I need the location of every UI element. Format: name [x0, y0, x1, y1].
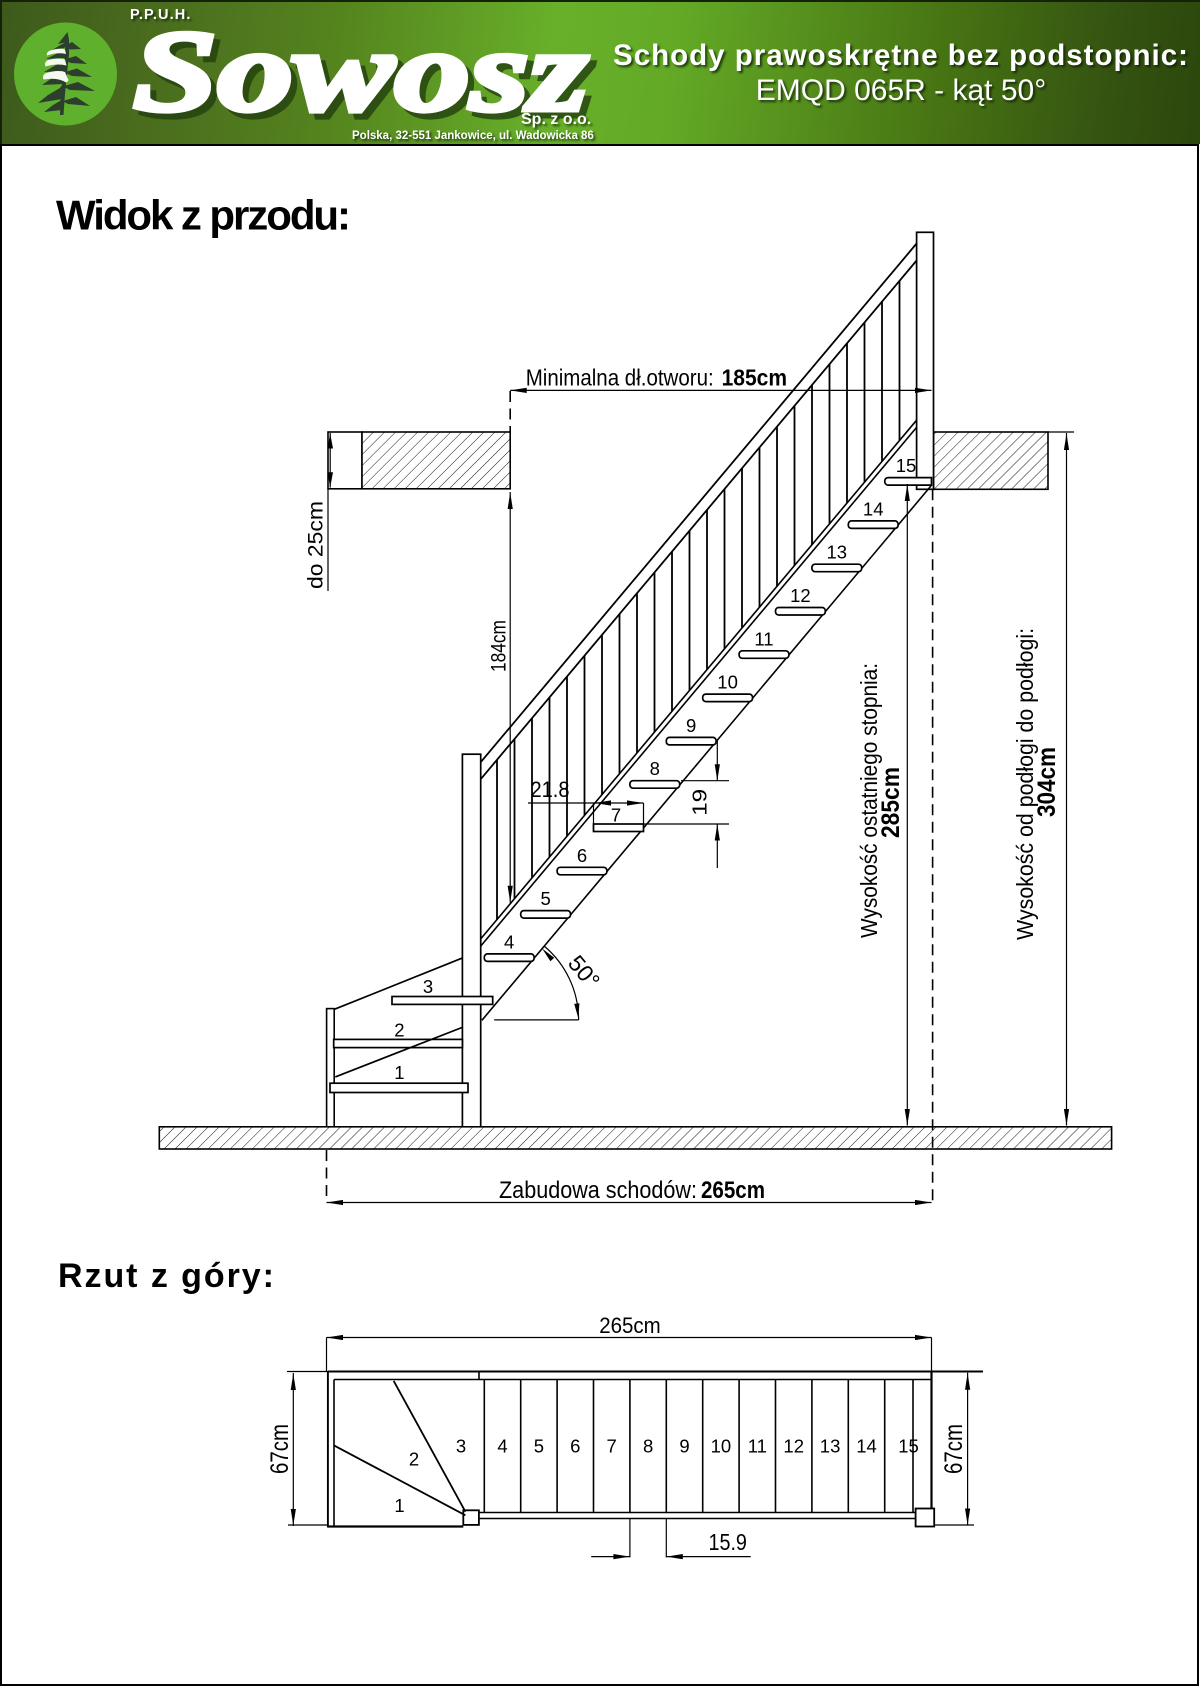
svg-text:6: 6 — [577, 845, 587, 866]
svg-text:6: 6 — [570, 1436, 580, 1457]
svg-text:285cm: 285cm — [877, 767, 905, 838]
svg-text:Zabudowa schodów:: Zabudowa schodów: — [499, 1177, 697, 1204]
svg-text:8: 8 — [643, 1436, 653, 1457]
svg-text:10: 10 — [711, 1436, 732, 1457]
svg-text:67cm: 67cm — [940, 1424, 968, 1474]
svg-text:Minimalna dł.otworu:: Minimalna dł.otworu: — [526, 365, 714, 391]
svg-text:7: 7 — [607, 1436, 617, 1457]
svg-text:5: 5 — [540, 888, 550, 909]
svg-text:14: 14 — [863, 498, 884, 519]
svg-text:3: 3 — [456, 1436, 466, 1457]
svg-text:9: 9 — [679, 1436, 689, 1457]
svg-text:15: 15 — [896, 455, 917, 476]
svg-text:185cm: 185cm — [722, 365, 788, 391]
svg-text:Rzut z góry:: Rzut z góry: — [58, 1257, 274, 1295]
svg-text:15.9: 15.9 — [708, 1529, 747, 1555]
svg-text:19: 19 — [690, 789, 712, 816]
svg-text:4: 4 — [504, 931, 514, 952]
svg-text:50°: 50° — [563, 950, 605, 993]
svg-text:2: 2 — [409, 1449, 419, 1470]
svg-text:4: 4 — [497, 1436, 507, 1457]
svg-text:11: 11 — [748, 1436, 767, 1457]
svg-text:13: 13 — [827, 542, 848, 563]
svg-text:3: 3 — [423, 976, 433, 997]
svg-text:2: 2 — [394, 1020, 404, 1041]
svg-text:265cm: 265cm — [599, 1313, 661, 1338]
svg-text:1: 1 — [394, 1495, 404, 1516]
svg-text:8: 8 — [650, 758, 660, 779]
svg-text:21.8: 21.8 — [531, 777, 570, 802]
svg-text:67cm: 67cm — [266, 1424, 294, 1474]
svg-text:304cm: 304cm — [1033, 747, 1061, 817]
svg-text:5: 5 — [534, 1436, 544, 1457]
svg-text:9: 9 — [686, 715, 696, 736]
svg-text:12: 12 — [790, 585, 811, 606]
svg-text:184cm: 184cm — [487, 620, 511, 672]
svg-text:10: 10 — [717, 672, 738, 693]
svg-text:265cm: 265cm — [701, 1177, 765, 1204]
svg-text:1: 1 — [394, 1062, 404, 1083]
svg-text:7: 7 — [611, 805, 621, 826]
svg-text:14: 14 — [856, 1436, 877, 1457]
svg-text:11: 11 — [754, 628, 773, 649]
svg-text:Widok z przodu:: Widok z przodu: — [56, 192, 351, 239]
svg-text:13: 13 — [820, 1436, 841, 1457]
svg-text:15: 15 — [898, 1436, 919, 1457]
svg-text:12: 12 — [783, 1436, 804, 1457]
svg-text:do 25cm: do 25cm — [304, 501, 328, 589]
